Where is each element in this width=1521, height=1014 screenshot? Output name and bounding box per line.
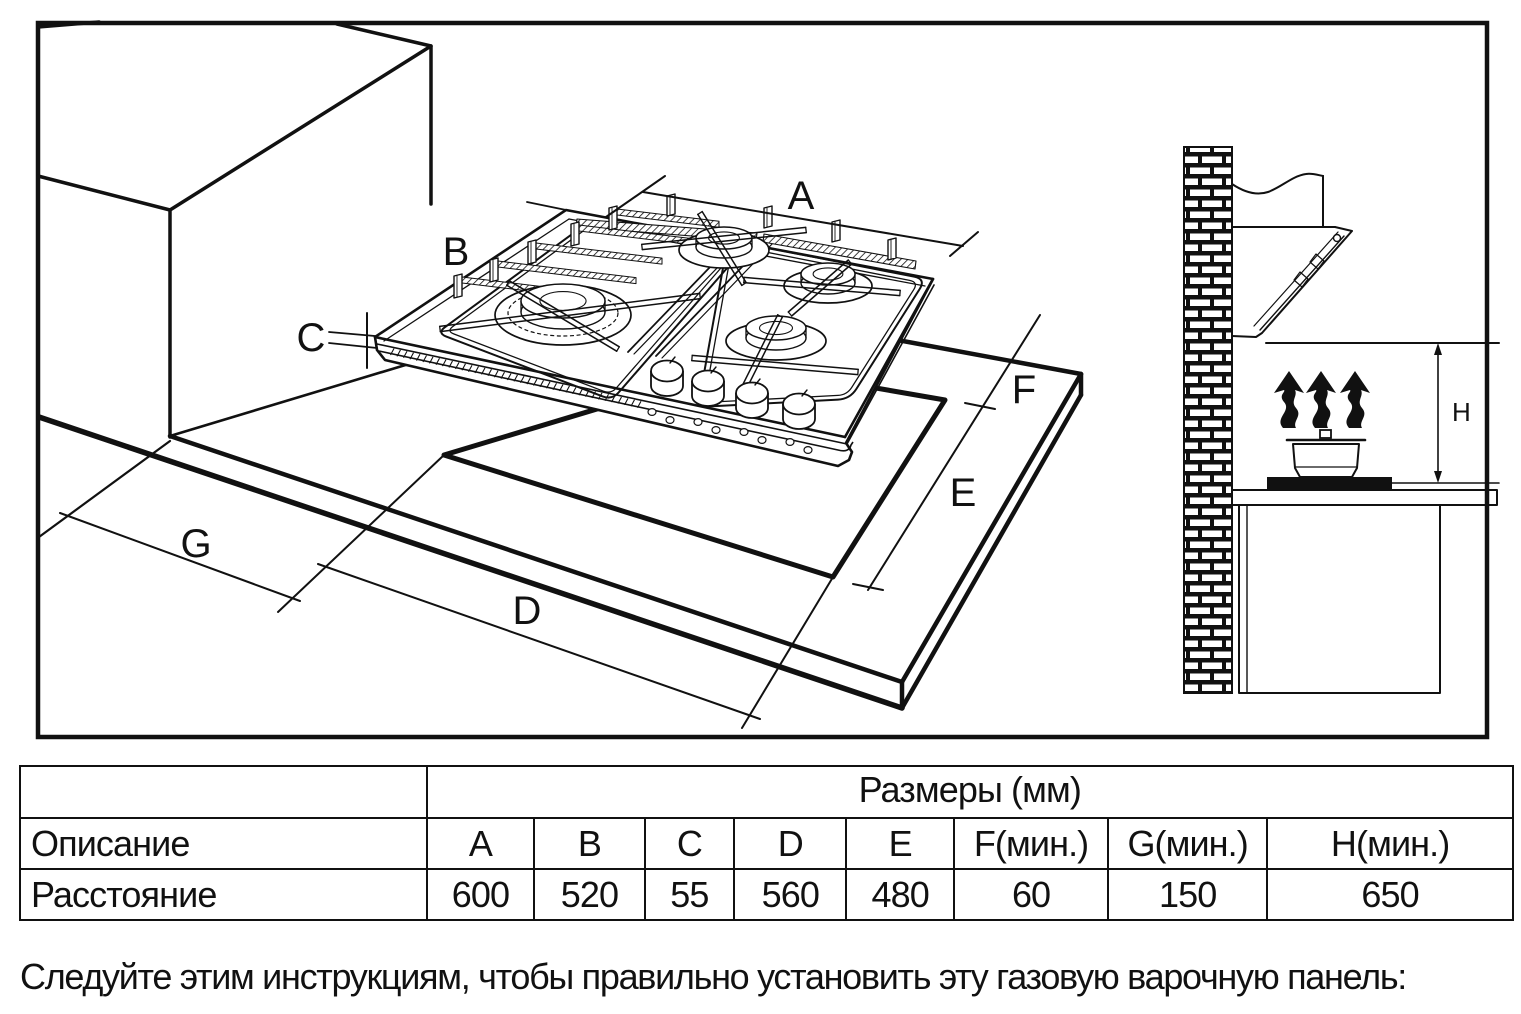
svg-text:F: F [1012, 368, 1036, 412]
svg-text:H: H [1452, 397, 1471, 427]
svg-text:B: B [443, 230, 470, 274]
svg-text:A: A [788, 174, 815, 218]
svg-text:D: D [513, 589, 542, 633]
svg-text:C: C [297, 316, 326, 360]
svg-text:E: E [950, 471, 977, 515]
svg-text:G: G [180, 522, 211, 566]
